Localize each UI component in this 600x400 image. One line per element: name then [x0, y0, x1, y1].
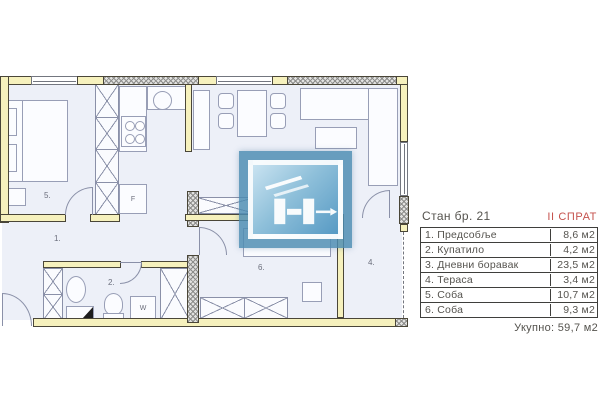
room-area: 9,3 м2 — [550, 304, 597, 316]
fridge: F — [119, 184, 147, 214]
room-label-bedroom2: 6. — [258, 264, 265, 272]
wall-segment — [400, 84, 408, 142]
room-label-hallway: 1. — [54, 235, 61, 243]
wall-segment — [272, 76, 288, 85]
closet-cell — [201, 298, 244, 318]
room-name: 2. Купатило — [421, 244, 550, 256]
window — [31, 76, 78, 85]
unit-title: Стан бр. 21 — [422, 209, 491, 223]
dining-table — [237, 90, 267, 137]
terrace-open-edge — [403, 232, 404, 318]
hatch-wall — [287, 76, 398, 85]
area-table-row: 6. Соба 9,3 м2 — [421, 302, 597, 317]
hatch-wall — [395, 318, 408, 327]
wardrobe-cell — [44, 294, 62, 320]
room-area: 10,7 м2 — [550, 289, 597, 301]
floor-plan: F W — [0, 0, 412, 340]
chair — [218, 93, 234, 109]
logo-frame — [248, 160, 343, 239]
sofa-right-section — [368, 88, 398, 186]
bathroom-wardrobe — [43, 268, 63, 320]
room-label-bathroom: 2. — [108, 279, 115, 287]
wall-segment — [0, 76, 9, 223]
wall-segment — [0, 214, 66, 222]
stove-burner — [125, 134, 135, 144]
hatch-pillar — [187, 191, 199, 227]
stove-burner — [125, 121, 135, 131]
bedroom2-closet — [200, 297, 288, 319]
room-label-terrace: 4. — [368, 259, 375, 267]
floorplan-page: F W — [0, 0, 600, 400]
stove-burner — [135, 121, 145, 131]
window — [216, 76, 273, 85]
nightstand — [302, 282, 322, 302]
toilet-bowl — [104, 293, 123, 315]
wardrobe-column — [95, 84, 119, 215]
room-area: 4,2 м2 — [550, 244, 597, 256]
area-table-row: 5. Соба 10,7 м2 — [421, 287, 597, 302]
blanket-line — [22, 101, 23, 181]
wall-segment — [141, 261, 188, 268]
area-table-row: 3. Дневни боравак 23,5 м2 — [421, 257, 597, 272]
room-name: 3. Дневни боравак — [421, 259, 550, 271]
area-table-row: 1. Предсобље 8,6 м2 — [421, 228, 597, 242]
area-table: 1. Предсобље 8,6 м2 2. Купатило 4,2 м2 3… — [420, 227, 598, 318]
agency-logo-watermark — [239, 151, 352, 248]
washer-label: W — [140, 305, 147, 312]
hatch-pillar — [187, 255, 199, 323]
wardrobe-cell — [96, 182, 118, 215]
wall-segment — [400, 224, 408, 232]
bar-counter — [193, 90, 210, 150]
bathroom-sink — [66, 276, 86, 303]
chair — [270, 113, 286, 129]
fridge-label: F — [131, 196, 135, 203]
wall-segment — [43, 261, 121, 268]
house-logo-icon — [253, 165, 338, 234]
kitchen-sink — [153, 91, 172, 110]
unit-info-panel: Стан бр. 21 II СПРАТ 1. Предсобље 8,6 м2… — [420, 209, 598, 334]
washing-machine: W — [130, 296, 156, 320]
closet-cell — [244, 298, 288, 318]
room-name: 4. Тераса — [421, 274, 550, 286]
nightstand — [8, 188, 26, 206]
chair — [218, 113, 234, 129]
wall-segment — [33, 318, 405, 327]
room-name: 5. Соба — [421, 289, 550, 301]
room-area: 8,6 м2 — [550, 229, 597, 241]
room-area: 3,4 м2 — [550, 274, 597, 286]
wardrobe-cell — [96, 85, 118, 117]
area-table-row: 2. Купатило 4,2 м2 — [421, 242, 597, 257]
window — [400, 142, 408, 196]
wall-segment — [185, 84, 192, 152]
wall-segment — [198, 76, 217, 85]
coffee-table — [315, 127, 357, 149]
hatch-wall — [399, 196, 409, 224]
room-name: 6. Соба — [421, 304, 550, 316]
total-area: Укупно: 59,7 м2 — [420, 322, 598, 334]
room-name: 1. Предсобље — [421, 229, 550, 241]
stove-burner — [135, 134, 145, 144]
room-area: 23,5 м2 — [550, 259, 597, 271]
wall-segment — [90, 214, 120, 222]
shower — [160, 268, 190, 320]
wardrobe-cell — [96, 149, 118, 182]
chair — [270, 93, 286, 109]
wardrobe-cell — [96, 117, 118, 150]
shower-pattern — [161, 269, 189, 319]
room-label-bedroom1: 5. — [44, 192, 51, 200]
wall-segment — [77, 76, 104, 85]
wardrobe-cell — [44, 269, 62, 294]
stove — [121, 116, 146, 147]
floor-label: II СПРАТ — [547, 211, 597, 223]
area-table-row: 4. Тераса 3,4 м2 — [421, 272, 597, 287]
unit-info-header: Стан бр. 21 II СПРАТ — [420, 209, 598, 227]
